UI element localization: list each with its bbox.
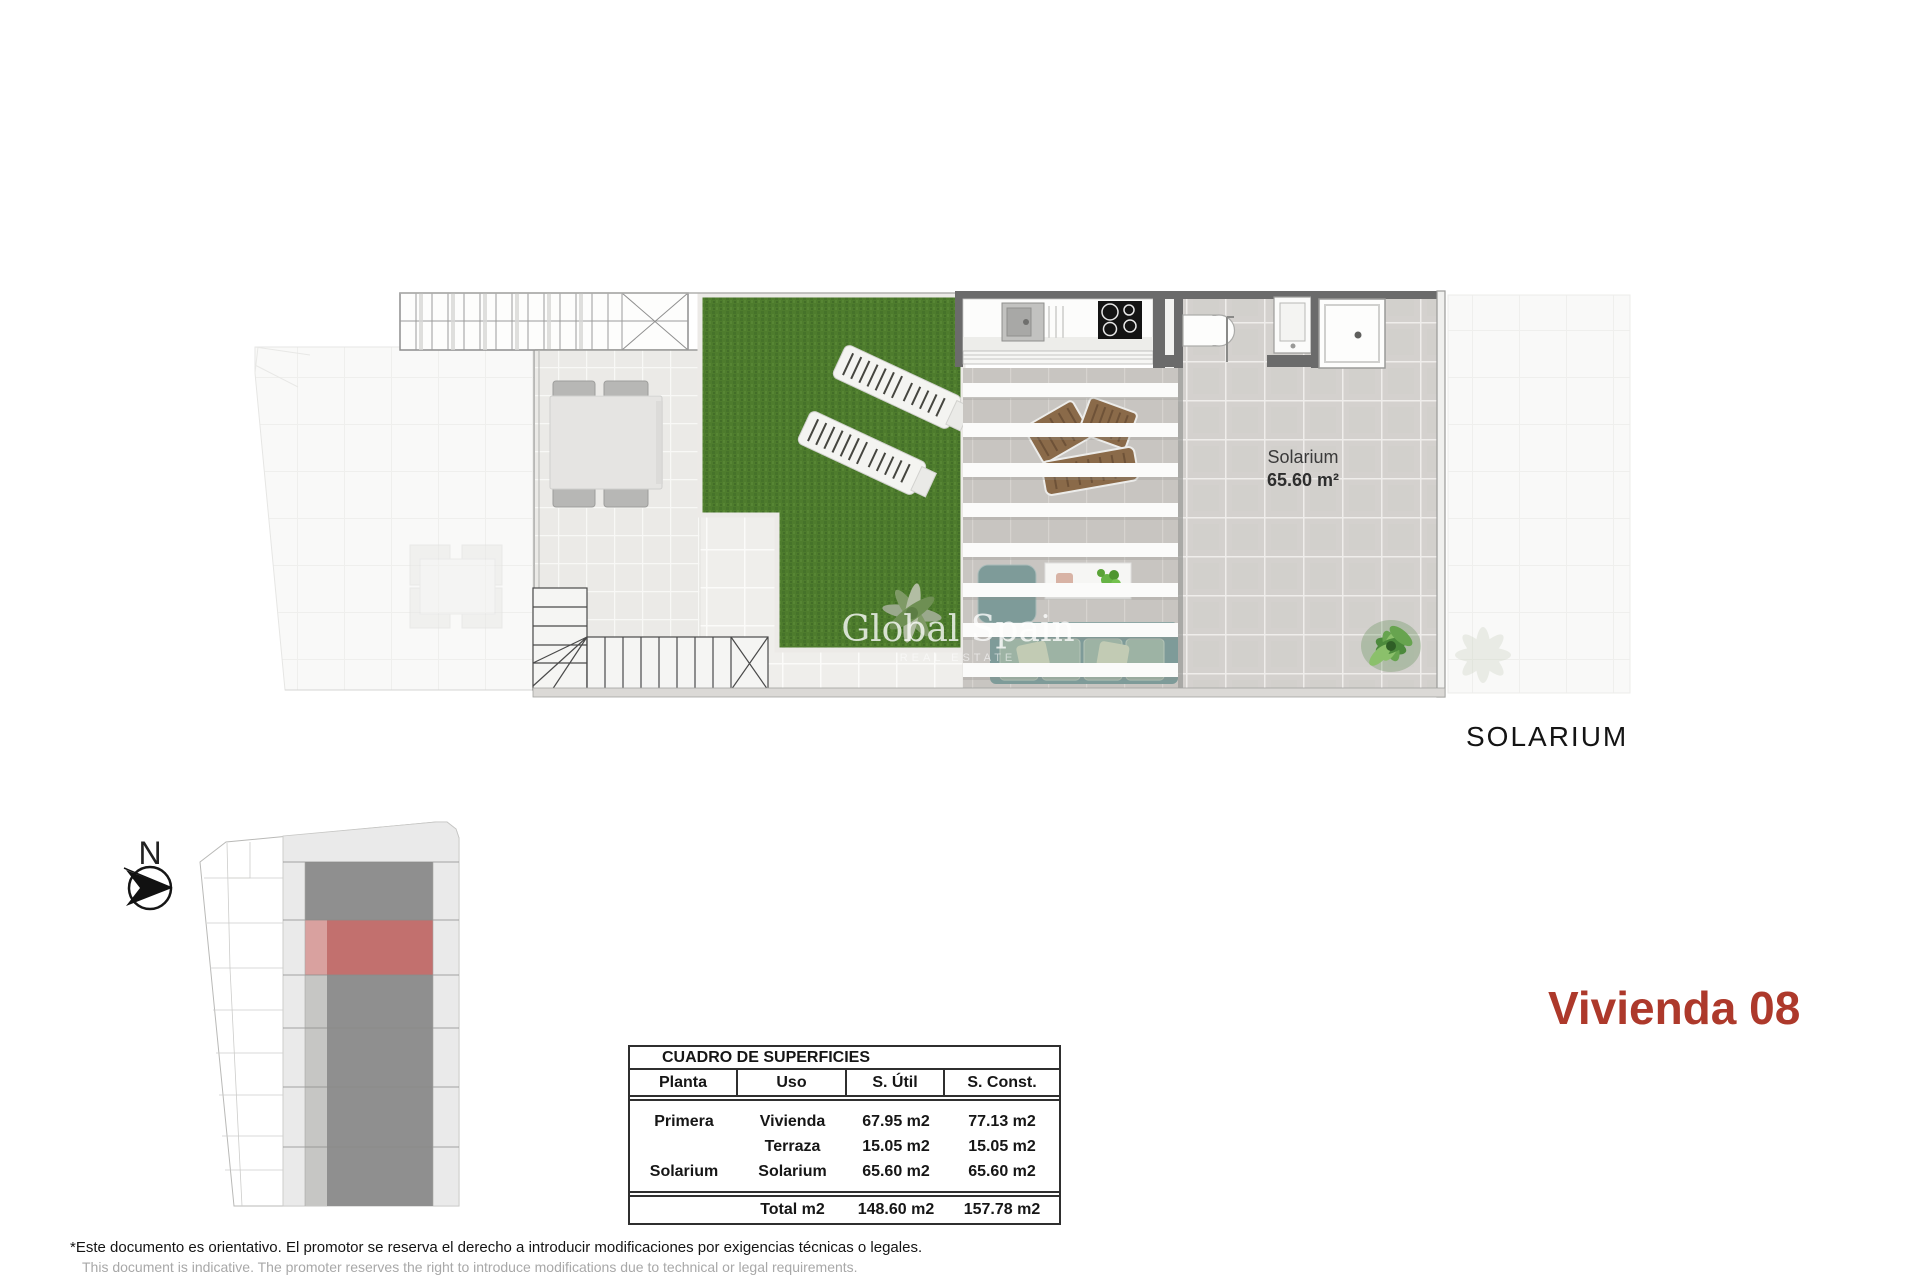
watermark-tagline: REAL ESTATE [900,652,1017,664]
potted-plant [1361,620,1421,672]
cell-planta: Solarium [630,1159,738,1184]
page: Solarium 65.60 m² [0,0,1920,1280]
surface-table-title: CUADRO DE SUPERFICIES [630,1047,1059,1070]
table-row: Primera Vivienda 67.95 m2 77.13 m2 [630,1109,1059,1134]
cell-uso: Solarium [738,1159,847,1184]
north-arrow-icon: N [124,835,172,909]
disclaimer-en: This document is indicative. The promote… [82,1259,922,1277]
shower-tray [1319,299,1385,368]
top-stairs [400,293,688,350]
cell-planta: Primera [630,1109,738,1134]
total-const: 157.78 m2 [945,1197,1059,1223]
floor-label: SOLARIUM [1466,721,1628,753]
kitchen-window-sill [963,351,1153,364]
site-parcel [200,822,459,1206]
surface-table: CUADRO DE SUPERFICIES Planta Uso S. Útil… [628,1045,1061,1225]
cell-planta [630,1134,738,1159]
watermark-brand: Global Spain [841,609,1074,650]
north-label: N [138,835,161,871]
cell-uso: Vivienda [738,1109,847,1134]
col-header-util: S. Útil [847,1070,945,1095]
cell-uso: Terraza [738,1134,847,1159]
cell-planta [630,1197,738,1223]
cabinet [1274,297,1311,353]
terrace-dining-set [550,381,663,507]
site-highlight-unit [305,920,433,975]
cell-util: 65.60 m2 [847,1159,945,1184]
total-label: Total m2 [738,1197,847,1223]
col-header-planta: Planta [630,1070,738,1095]
room-label: Solarium [1267,447,1338,467]
cell-util: 15.05 m2 [847,1134,945,1159]
site-plan: N [90,818,490,1218]
unit-title: Vivienda 08 [1548,981,1800,1035]
induction-hob [1098,301,1142,339]
surface-table-header: Planta Uso S. Útil S. Const. [630,1070,1059,1097]
disclaimer-es: *Este documento es orientativo. El promo… [70,1239,922,1258]
col-header-const: S. Const. [945,1070,1059,1095]
neighbor-solarium-right [1448,295,1630,693]
disclaimer: *Este documento es orientativo. El promo… [70,1239,922,1276]
surface-table-body: Primera Vivienda 67.95 m2 77.13 m2 Terra… [630,1101,1059,1193]
cell-util: 67.95 m2 [847,1109,945,1134]
neighbor-terrace-left [255,347,535,690]
total-util: 148.60 m2 [847,1197,945,1223]
neighbor-palm [1455,627,1511,683]
floor-plan: Solarium 65.60 m² [250,283,1645,708]
table-row: Solarium Solarium 65.60 m2 65.60 m2 [630,1159,1059,1184]
table-total-row: Total m2 148.60 m2 157.78 m2 [630,1197,1059,1223]
col-header-uso: Uso [738,1070,847,1095]
cell-const: 65.60 m2 [945,1159,1059,1184]
cell-const: 77.13 m2 [945,1109,1059,1134]
cell-const: 15.05 m2 [945,1134,1059,1159]
room-area-label: 65.60 m² [1267,470,1339,490]
table-row: Terraza 15.05 m2 15.05 m2 [630,1134,1059,1159]
